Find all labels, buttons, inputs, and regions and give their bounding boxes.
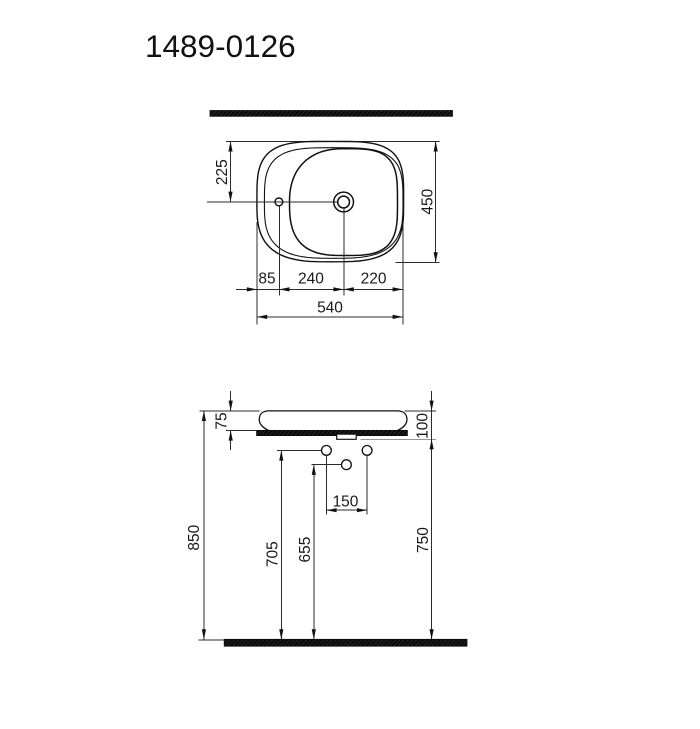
svg-text:75: 75 [214, 412, 231, 429]
svg-text:225: 225 [214, 159, 231, 185]
svg-text:220: 220 [361, 270, 387, 287]
svg-text:750: 750 [415, 527, 432, 553]
svg-text:150: 150 [333, 494, 359, 511]
svg-text:850: 850 [186, 524, 203, 550]
svg-text:655: 655 [297, 537, 314, 563]
svg-text:1489-0126: 1489-0126 [145, 28, 296, 64]
svg-text:85: 85 [258, 270, 275, 287]
svg-text:705: 705 [264, 541, 281, 567]
svg-text:540: 540 [317, 299, 343, 316]
svg-text:100: 100 [415, 413, 432, 439]
svg-text:450: 450 [420, 188, 437, 214]
svg-text:240: 240 [298, 270, 324, 287]
